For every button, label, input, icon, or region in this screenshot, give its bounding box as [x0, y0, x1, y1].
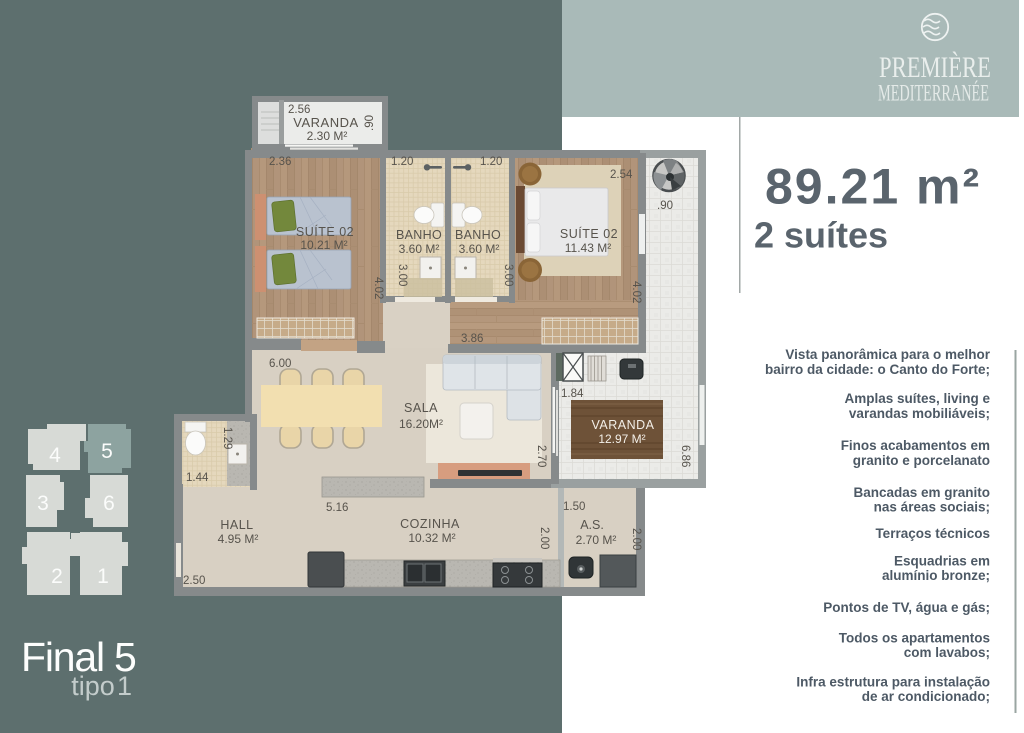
svg-text:Todos os apartamentos: Todos os apartamentos	[839, 631, 990, 646]
svg-text:2.70: 2.70	[535, 445, 547, 467]
svg-text:SUÍTE 02: SUÍTE 02	[296, 224, 354, 239]
svg-text:12.97 M²: 12.97 M²	[598, 432, 645, 446]
svg-text:SALA: SALA	[404, 401, 438, 415]
svg-text:10.21 M²: 10.21 M²	[300, 238, 347, 252]
svg-text:alumínio bronze;: alumínio bronze;	[882, 568, 990, 583]
svg-text:2: 2	[51, 565, 63, 588]
svg-text:VARANDA: VARANDA	[591, 418, 654, 432]
svg-text:1: 1	[97, 565, 109, 588]
svg-text:bairro da cidade: o Canto do F: bairro da cidade: o Canto do Forte;	[765, 362, 990, 377]
svg-text:1.29: 1.29	[221, 427, 233, 449]
svg-text:3: 3	[37, 492, 49, 515]
svg-text:6.86: 6.86	[679, 445, 691, 467]
svg-text:Vista panorâmica para o melhor: Vista panorâmica para o melhor	[785, 347, 990, 362]
svg-text:2.30 M²: 2.30 M²	[307, 129, 348, 143]
svg-text:2.00: 2.00	[538, 527, 550, 549]
svg-text:5.16: 5.16	[326, 502, 348, 514]
svg-text:Infra estrutura para instalaçã: Infra estrutura para instalação	[796, 675, 990, 690]
svg-text:PREMIÈRE: PREMIÈRE	[879, 51, 991, 84]
svg-text:granito e porcelanato: granito e porcelanato	[853, 453, 990, 468]
svg-text:HALL: HALL	[220, 518, 253, 532]
svg-text:A.S.: A.S.	[580, 518, 604, 532]
svg-text:3.60 M²: 3.60 M²	[459, 242, 500, 256]
svg-text:4.02: 4.02	[372, 277, 384, 299]
svg-text:MEDITERRANÉE: MEDITERRANÉE	[878, 81, 989, 106]
svg-text:1.44: 1.44	[186, 472, 209, 484]
svg-text:11.43 M²: 11.43 M²	[565, 241, 611, 255]
svg-text:SUÍTE 02: SUÍTE 02	[560, 226, 618, 241]
svg-text:3.00: 3.00	[502, 264, 514, 286]
svg-text:10.32 M²: 10.32 M²	[408, 531, 455, 545]
svg-text:1.20: 1.20	[480, 156, 502, 168]
svg-text:2.36: 2.36	[269, 156, 291, 168]
svg-text:BANHO: BANHO	[396, 228, 442, 242]
svg-text:3.60 M²: 3.60 M²	[399, 242, 440, 256]
svg-text:Esquadrias em: Esquadrias em	[894, 554, 990, 569]
svg-text:Amplas suítes, living e: Amplas suítes, living e	[844, 391, 990, 406]
svg-text:3.00: 3.00	[396, 264, 408, 286]
svg-text:COZINHA: COZINHA	[400, 517, 460, 531]
svg-text:tipo 1: tipo 1	[71, 671, 132, 701]
svg-text:2.50: 2.50	[183, 575, 205, 587]
svg-text:16.20M²: 16.20M²	[399, 417, 443, 431]
svg-text:1.84: 1.84	[561, 388, 584, 400]
svg-text:4.95 M²: 4.95 M²	[218, 532, 259, 546]
svg-text:Terraços técnicos: Terraços técnicos	[875, 526, 990, 541]
svg-text:com lavabos;: com lavabos;	[904, 645, 990, 660]
svg-text:BANHO: BANHO	[455, 228, 501, 242]
svg-text:89.21 m²: 89.21 m²	[765, 159, 981, 215]
svg-text:.90: .90	[364, 115, 376, 131]
svg-text:Finos acabamentos em: Finos acabamentos em	[841, 438, 990, 453]
svg-text:VARANDA: VARANDA	[293, 115, 358, 130]
svg-text:2.00: 2.00	[630, 528, 642, 550]
svg-text:6.00: 6.00	[269, 358, 291, 370]
svg-text:.90: .90	[657, 200, 673, 212]
svg-text:Bancadas em granito: Bancadas em granito	[853, 485, 990, 500]
svg-text:4.02: 4.02	[630, 281, 642, 303]
svg-text:2 suítes: 2 suítes	[754, 215, 888, 256]
svg-text:4: 4	[49, 444, 61, 467]
svg-text:5: 5	[101, 440, 113, 463]
svg-text:Pontos de TV, água e gás;: Pontos de TV, água e gás;	[823, 600, 990, 615]
svg-text:2.70 M²: 2.70 M²	[576, 533, 617, 547]
svg-text:varandas mobiliáveis;: varandas mobiliáveis;	[849, 406, 990, 421]
svg-text:3.86: 3.86	[461, 333, 483, 345]
svg-text:1.20: 1.20	[391, 156, 413, 168]
svg-text:1.50: 1.50	[563, 501, 585, 513]
svg-text:6: 6	[103, 492, 115, 515]
svg-text:de ar condicionado;: de ar condicionado;	[862, 689, 990, 704]
svg-text:nas áreas sociais;: nas áreas sociais;	[874, 500, 990, 515]
svg-text:2.54: 2.54	[610, 169, 633, 181]
